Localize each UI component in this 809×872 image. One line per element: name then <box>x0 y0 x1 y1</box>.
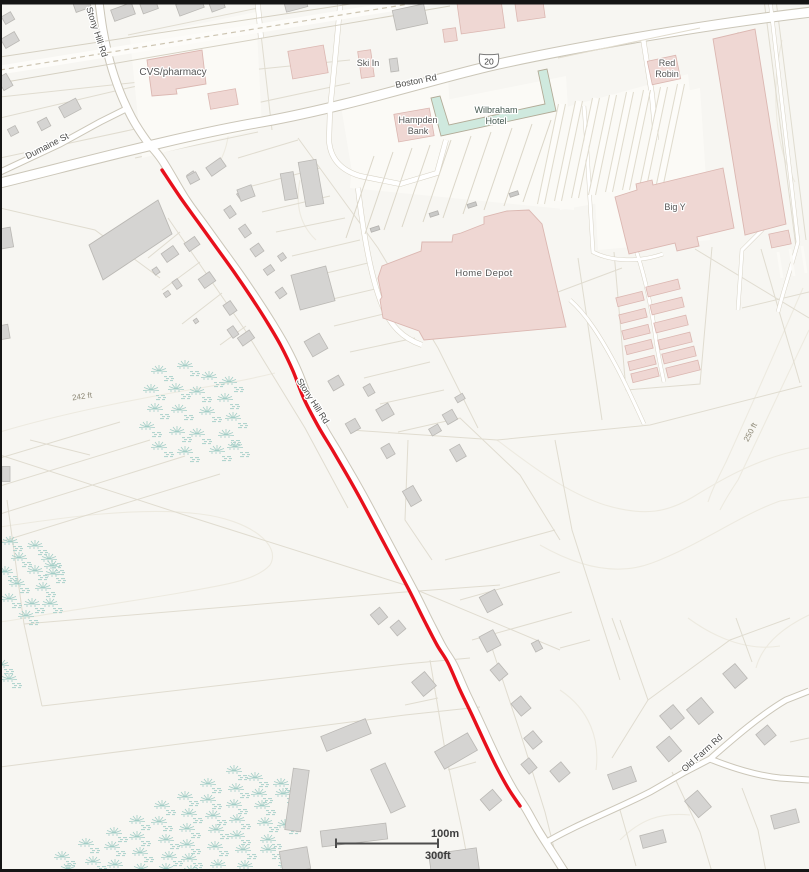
svg-text:Wilbraham: Wilbraham <box>474 105 517 115</box>
svg-text:Big Y: Big Y <box>664 202 685 212</box>
svg-text:CVS/pharmacy: CVS/pharmacy <box>139 67 206 78</box>
svg-text:20: 20 <box>484 56 494 66</box>
svg-text:Hampden: Hampden <box>398 115 437 125</box>
svg-text:100m: 100m <box>431 828 459 840</box>
svg-text:Robin: Robin <box>655 69 679 79</box>
svg-text:Ski In: Ski In <box>357 58 380 68</box>
svg-text:Home Depot: Home Depot <box>455 268 512 279</box>
svg-text:300ft: 300ft <box>425 850 451 862</box>
svg-text:Bank: Bank <box>408 126 429 136</box>
svg-text:Red: Red <box>659 58 676 68</box>
svg-text:Hotel: Hotel <box>485 116 506 126</box>
